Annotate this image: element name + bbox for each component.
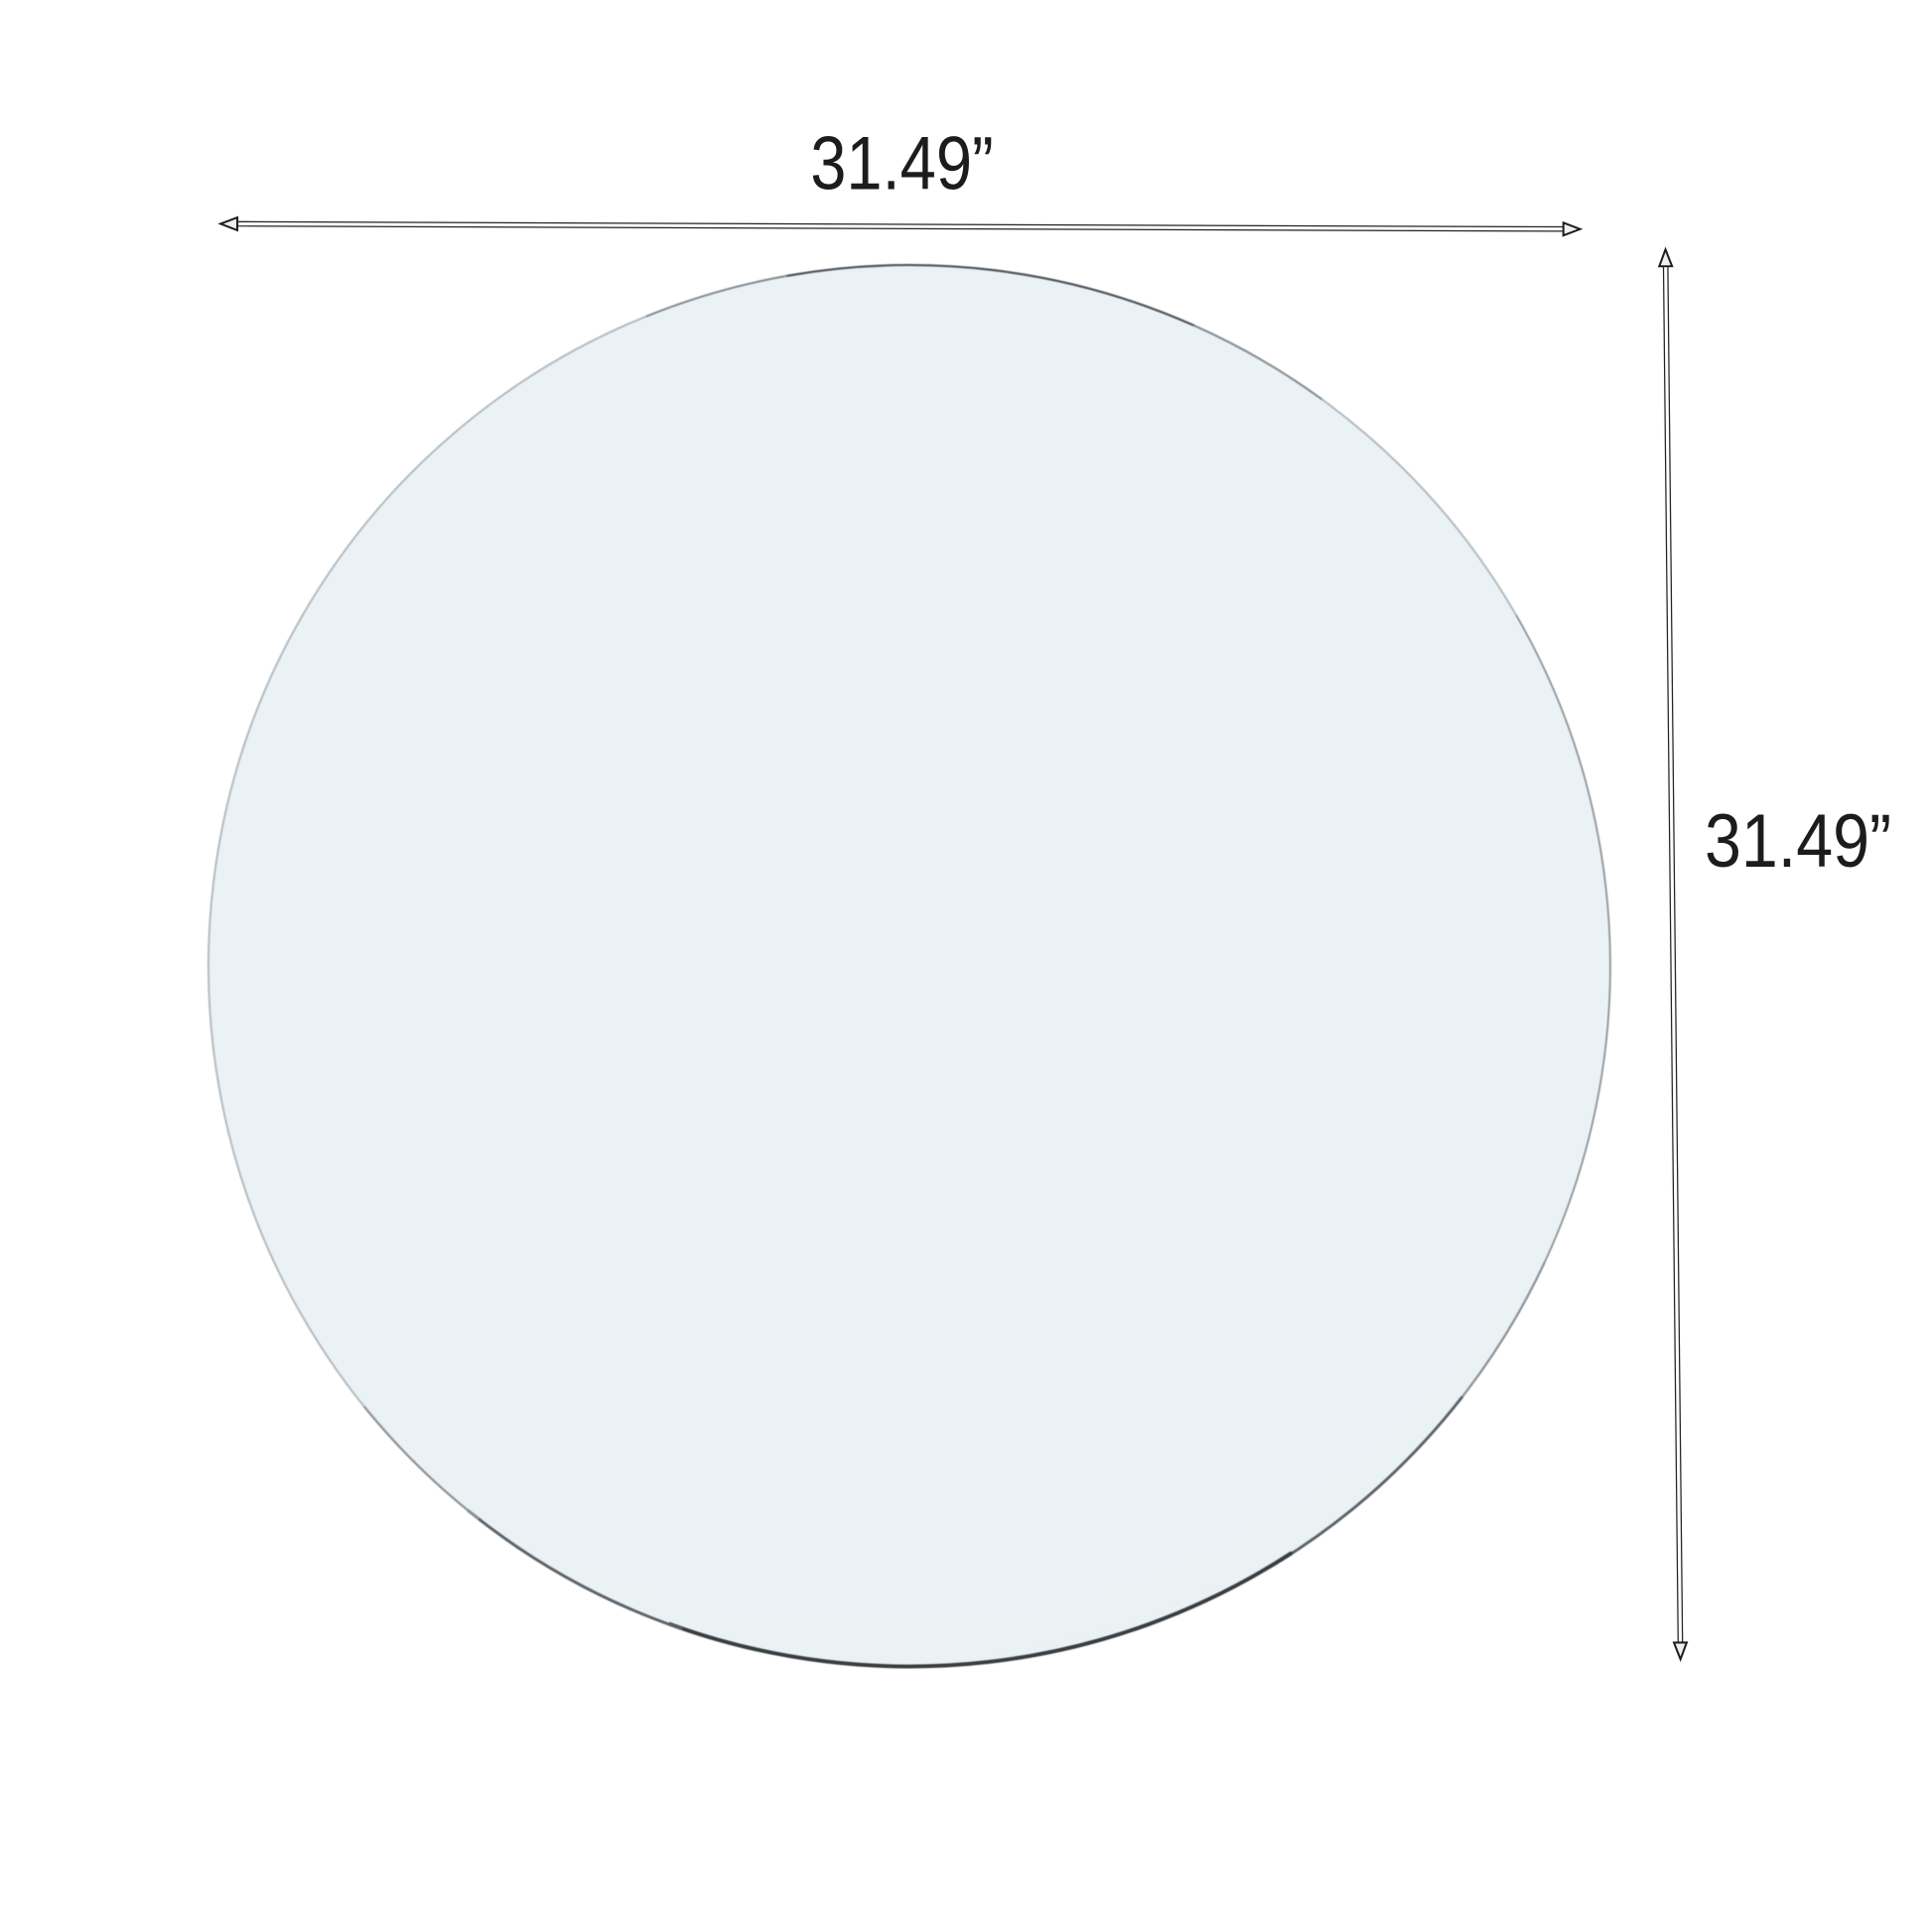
svg-text:31.49”: 31.49” [1705, 799, 1891, 884]
svg-text:31.49”: 31.49” [810, 122, 994, 207]
